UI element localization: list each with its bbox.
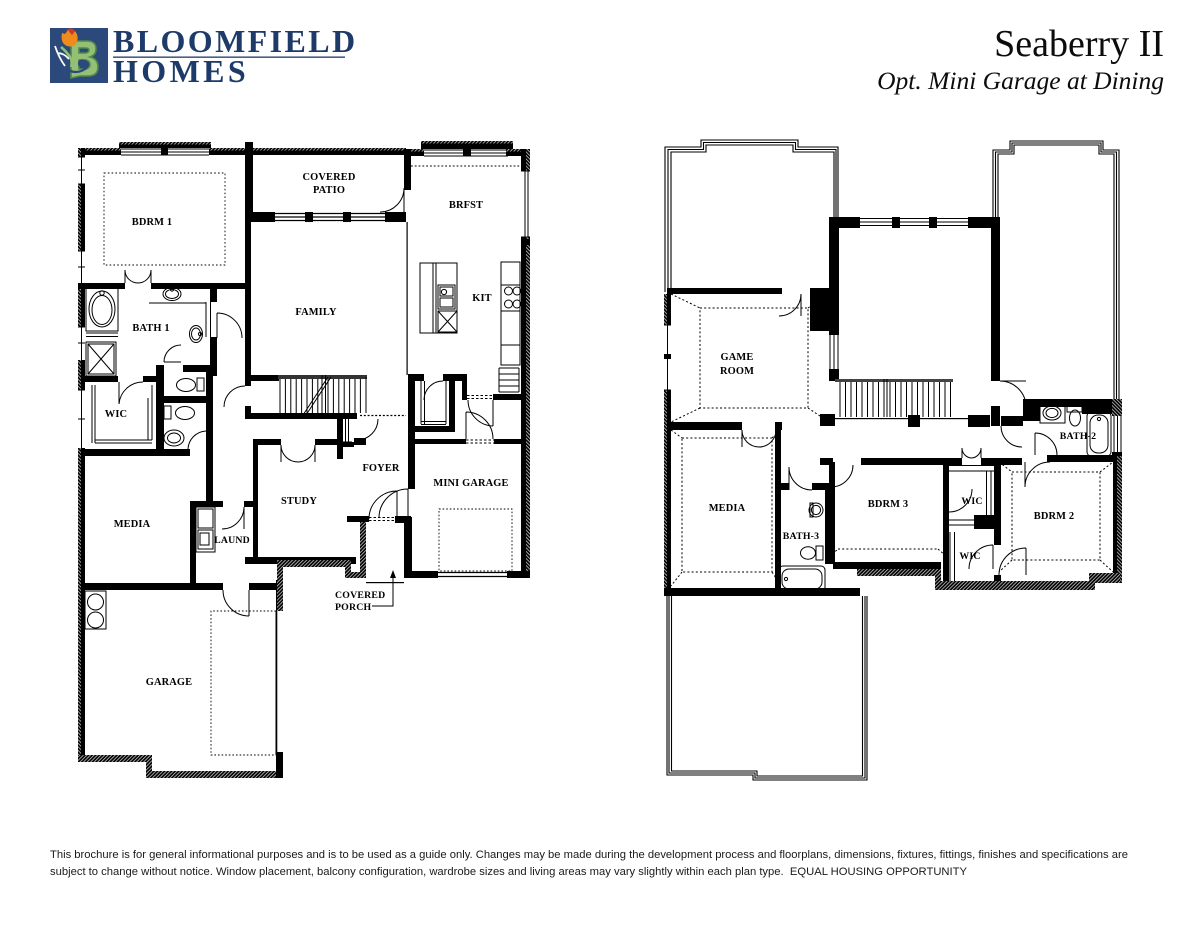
svg-text:COVERED: COVERED bbox=[335, 590, 385, 601]
svg-text:BRFST: BRFST bbox=[449, 200, 483, 211]
svg-text:KIT: KIT bbox=[472, 293, 492, 304]
svg-text:FAMILY: FAMILY bbox=[295, 307, 337, 318]
svg-text:BDRM 2: BDRM 2 bbox=[1034, 511, 1074, 522]
svg-text:Opt. Mini Garage at Dining: Opt. Mini Garage at Dining bbox=[877, 66, 1164, 95]
svg-text:GARAGE: GARAGE bbox=[146, 677, 193, 688]
svg-text:BATH-3: BATH-3 bbox=[783, 531, 819, 542]
svg-text:PORCH: PORCH bbox=[335, 602, 372, 613]
svg-text:COVERED: COVERED bbox=[302, 172, 355, 183]
svg-text:LAUND: LAUND bbox=[214, 535, 250, 546]
svg-text:WIC: WIC bbox=[105, 409, 127, 420]
svg-text:GAME: GAME bbox=[721, 352, 754, 363]
svg-text:MEDIA: MEDIA bbox=[114, 519, 151, 530]
svg-text:WIC: WIC bbox=[961, 496, 982, 507]
svg-text:FOYER: FOYER bbox=[362, 463, 399, 474]
svg-text:BATH 1: BATH 1 bbox=[132, 323, 169, 334]
svg-text:BDRM 3: BDRM 3 bbox=[868, 499, 908, 510]
svg-text:MINI GARAGE: MINI GARAGE bbox=[433, 478, 508, 489]
svg-text:ROOM: ROOM bbox=[720, 366, 754, 377]
svg-text:STUDY: STUDY bbox=[281, 496, 317, 507]
svg-text:This brochure is for general i: This brochure is for general information… bbox=[50, 849, 1128, 861]
svg-text:BDRM 1: BDRM 1 bbox=[132, 217, 172, 228]
svg-text:Seaberry II: Seaberry II bbox=[994, 23, 1164, 65]
svg-text:BATH-2: BATH-2 bbox=[1060, 431, 1096, 442]
svg-text:HOMES: HOMES bbox=[113, 53, 249, 89]
svg-text:subject to change without noti: subject to change without notice. Window… bbox=[50, 866, 967, 878]
svg-text:PATIO: PATIO bbox=[313, 185, 345, 196]
svg-text:MEDIA: MEDIA bbox=[709, 503, 746, 514]
